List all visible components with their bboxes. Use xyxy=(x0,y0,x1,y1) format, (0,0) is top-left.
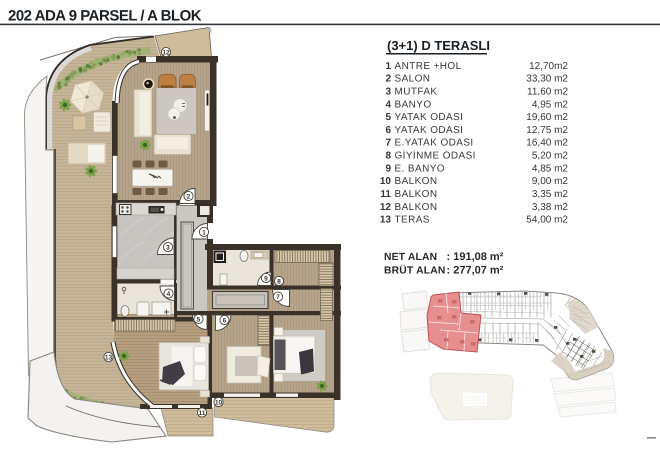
svg-text:3: 3 xyxy=(166,244,170,251)
svg-text:4: 4 xyxy=(385,99,391,110)
svg-text:7: 7 xyxy=(276,294,280,301)
svg-text:19,60 m2: 19,60 m2 xyxy=(526,112,568,123)
svg-text:12: 12 xyxy=(162,49,170,56)
svg-text:YATAK ODASI: YATAK ODASI xyxy=(395,112,464,123)
svg-text:202 ADA 9 PARSEL / A BLOK: 202 ADA 9 PARSEL / A BLOK xyxy=(8,8,202,25)
svg-text:8: 8 xyxy=(277,278,281,285)
svg-text:(3+1) D TERASLI: (3+1) D TERASLI xyxy=(387,38,490,53)
svg-text:9: 9 xyxy=(264,275,268,282)
svg-text:4: 4 xyxy=(167,291,171,298)
svg-text:E. BANYO: E. BANYO xyxy=(395,163,445,174)
svg-text:2: 2 xyxy=(187,193,191,200)
svg-text:: 277,07 m²: : 277,07 m² xyxy=(447,265,504,277)
svg-text:10: 10 xyxy=(215,399,223,406)
svg-text:3,38 m2: 3,38 m2 xyxy=(532,202,569,213)
svg-text:ANTRE +HOL: ANTRE +HOL xyxy=(395,61,462,72)
svg-text:3: 3 xyxy=(385,86,391,97)
svg-text:GİYİNME ODASI: GİYİNME ODASI xyxy=(395,150,476,162)
svg-text:BANYO: BANYO xyxy=(395,99,432,110)
svg-text:TERAS: TERAS xyxy=(395,215,430,226)
svg-text:11,60 m2: 11,60 m2 xyxy=(527,86,568,97)
svg-text:12,75 m2: 12,75 m2 xyxy=(526,125,568,136)
svg-text:E.YATAK ODASI: E.YATAK ODASI xyxy=(395,138,474,149)
svg-text:4,95 m2: 4,95 m2 xyxy=(532,99,569,110)
svg-text:1: 1 xyxy=(385,61,391,72)
svg-text:SALON: SALON xyxy=(395,74,431,85)
svg-text:13: 13 xyxy=(105,354,113,361)
svg-text:3,35 m2: 3,35 m2 xyxy=(532,189,569,200)
svg-text:12: 12 xyxy=(380,202,392,213)
svg-text:9: 9 xyxy=(385,163,391,174)
svg-text:YATAK ODASI: YATAK ODASI xyxy=(395,125,464,136)
svg-text:5: 5 xyxy=(385,112,391,123)
svg-text:12,70m2: 12,70m2 xyxy=(529,61,568,72)
svg-text:7: 7 xyxy=(385,138,391,149)
svg-text:BALKON: BALKON xyxy=(395,202,438,213)
svg-text:4,85 m2: 4,85 m2 xyxy=(532,163,569,174)
svg-text:NET ALAN: NET ALAN xyxy=(384,252,437,263)
svg-text:1: 1 xyxy=(202,229,206,236)
svg-text:13: 13 xyxy=(380,215,392,226)
svg-text:5: 5 xyxy=(197,316,201,323)
svg-text:2: 2 xyxy=(385,74,391,85)
svg-text:11: 11 xyxy=(380,189,391,200)
svg-text:BALKON: BALKON xyxy=(395,176,438,187)
svg-text:33,30 m2: 33,30 m2 xyxy=(526,74,568,85)
svg-text:9,00 m2: 9,00 m2 xyxy=(532,176,569,187)
svg-text:MUTFAK: MUTFAK xyxy=(395,86,438,97)
svg-text:10: 10 xyxy=(380,176,392,187)
svg-text:54,00 m2: 54,00 m2 xyxy=(526,215,568,226)
svg-text:: 191,08 m²: : 191,08 m² xyxy=(447,251,504,263)
svg-text:8: 8 xyxy=(385,151,391,162)
svg-text:BALKON: BALKON xyxy=(395,189,438,200)
svg-text:BRÜT ALAN: BRÜT ALAN xyxy=(384,265,445,277)
svg-text:16,40 m2: 16,40 m2 xyxy=(526,138,568,149)
svg-text:6: 6 xyxy=(385,125,391,136)
svg-text:6: 6 xyxy=(223,317,227,324)
svg-text:5,20 m2: 5,20 m2 xyxy=(532,151,569,162)
svg-text:11: 11 xyxy=(199,410,206,417)
